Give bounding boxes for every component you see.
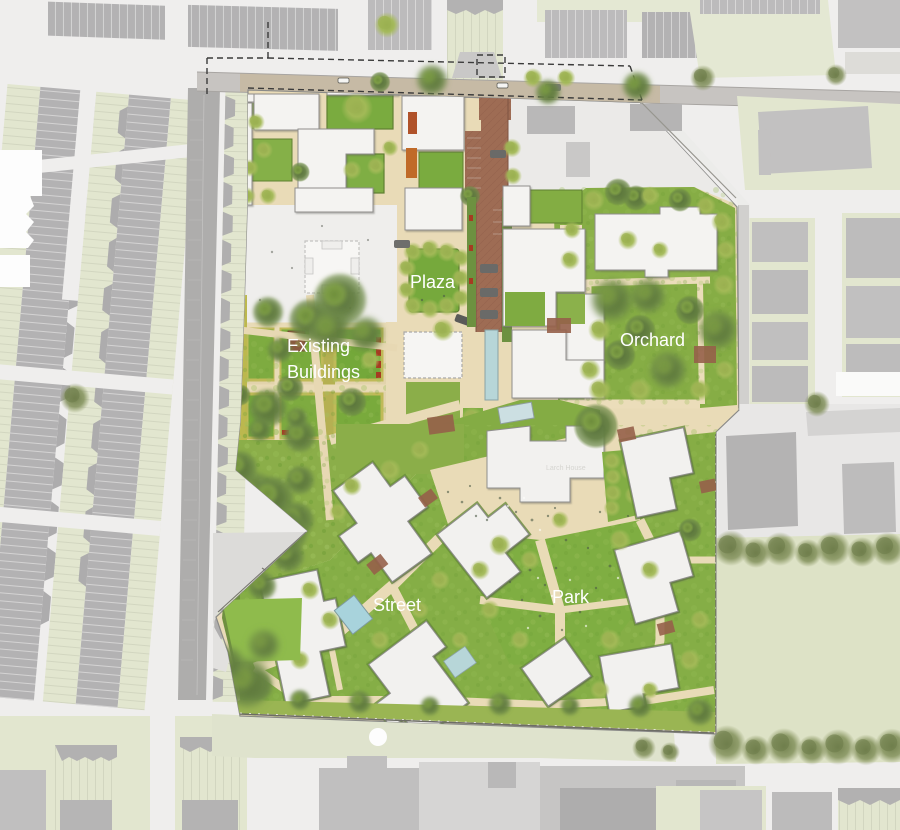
- svg-text:Existing: Existing: [287, 336, 350, 356]
- svg-text:Orchard: Orchard: [620, 330, 685, 350]
- svg-text:Buildings: Buildings: [287, 362, 360, 382]
- svg-text:Street: Street: [373, 595, 421, 615]
- svg-text:Plaza: Plaza: [410, 272, 456, 292]
- svg-text:Park: Park: [552, 587, 590, 607]
- svg-text:Larch House: Larch House: [546, 465, 586, 472]
